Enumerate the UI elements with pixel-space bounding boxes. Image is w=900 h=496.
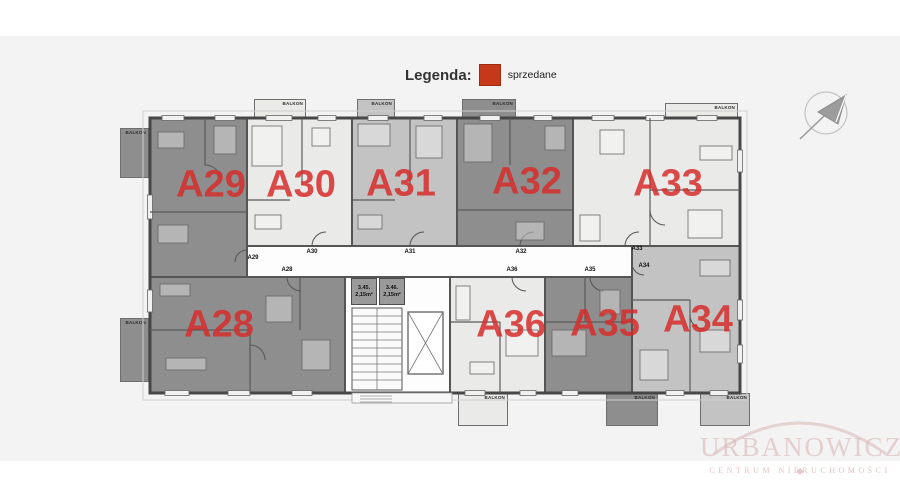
balcony-a32: BALKON	[462, 99, 516, 119]
balcony-a34: BALKON	[700, 393, 750, 426]
apartment-a33[interactable]	[573, 118, 740, 246]
door-label-a32: A32	[515, 249, 526, 255]
apartment-a29[interactable]	[150, 118, 247, 277]
storage-room-346: 3.46.2,15m²	[379, 278, 405, 305]
door-label-a34: A34	[638, 263, 649, 269]
floorplan: BALKON BALKON BALKON BALKON BALKON BALKO…	[0, 0, 900, 496]
apartment-a35[interactable]	[545, 277, 632, 393]
balcony-a31: BALKON	[357, 99, 395, 119]
apartment-a32[interactable]	[457, 118, 573, 246]
storage-room-345: 3.45.2,15m²	[351, 278, 377, 305]
door-label-a33: A33	[631, 246, 642, 252]
apartment-a31[interactable]	[352, 118, 457, 246]
door-label-a31: A31	[404, 249, 415, 255]
door-label-a36: A36	[506, 267, 517, 273]
apartment-a30[interactable]	[247, 118, 352, 246]
balcony-a36: BALKON	[458, 393, 508, 426]
door-label-a30: A30	[306, 249, 317, 255]
door-label-a28: A28	[281, 267, 292, 273]
door-label-a29: A29	[247, 255, 258, 261]
apartment-a36[interactable]	[450, 277, 545, 393]
balcony-a30: BALKON	[254, 99, 306, 119]
balcony-a29: BALKON	[120, 128, 149, 178]
balcony-a35: BALKON	[606, 393, 658, 426]
balcony-a28: BALKON	[120, 318, 149, 382]
apartment-a28[interactable]	[150, 277, 345, 393]
corridor	[247, 246, 632, 277]
door-label-a35: A35	[584, 267, 595, 273]
